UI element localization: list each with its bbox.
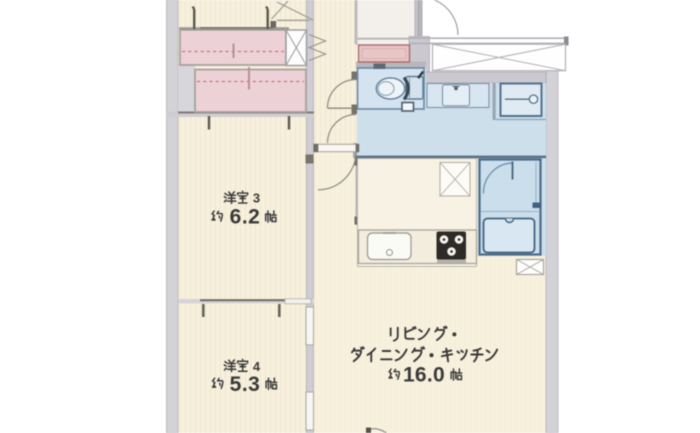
svg-text:4: 4 bbox=[253, 359, 261, 374]
svg-text:5.3: 5.3 bbox=[230, 373, 261, 396]
svg-text:16.0: 16.0 bbox=[403, 363, 445, 386]
svg-text:3: 3 bbox=[253, 191, 260, 206]
svg-text:6.2: 6.2 bbox=[230, 206, 261, 229]
